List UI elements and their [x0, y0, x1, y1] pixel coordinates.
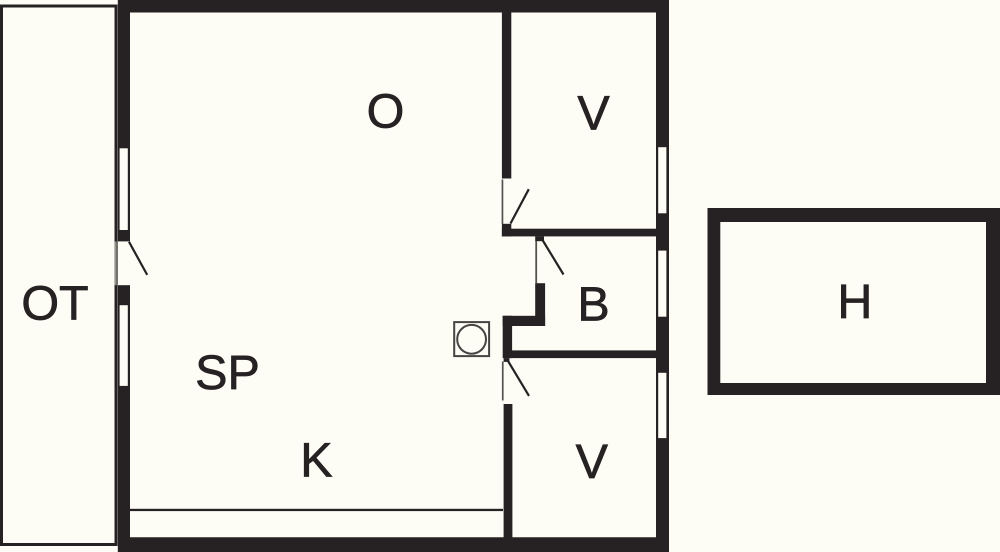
- svg-text:V: V: [577, 86, 610, 140]
- svg-text:H: H: [837, 275, 872, 329]
- svg-text:O: O: [367, 85, 405, 139]
- svg-text:V: V: [576, 435, 609, 489]
- svg-text:OT: OT: [21, 276, 88, 330]
- svg-text:SP: SP: [195, 346, 260, 400]
- svg-text:K: K: [300, 433, 332, 487]
- svg-text:B: B: [577, 278, 609, 332]
